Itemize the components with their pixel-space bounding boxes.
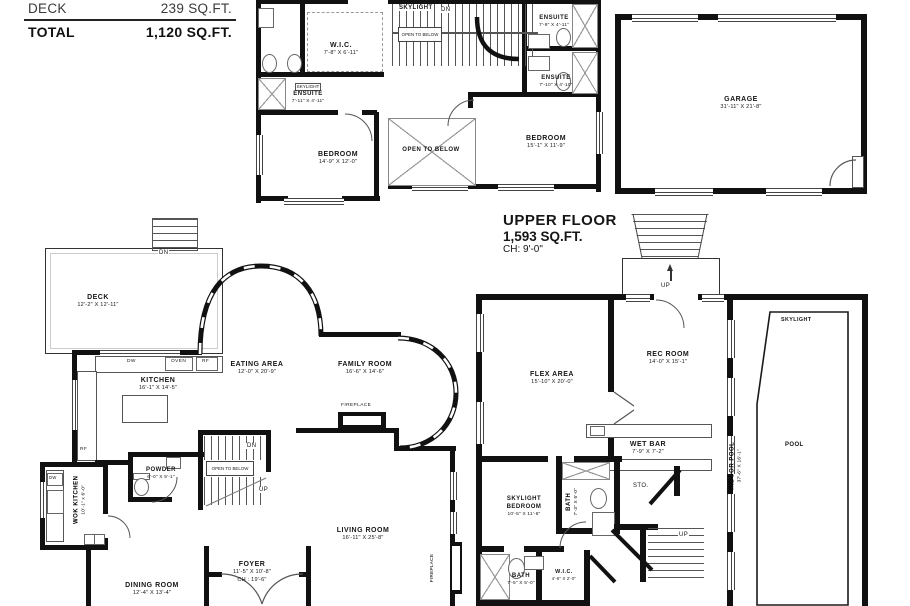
room-label-ensuite: ENSUITE 7'-10" X 4'-10": [523, 72, 589, 92]
room-label-dining-room: DINING ROOM 12'-4" X 13'-4": [106, 578, 198, 600]
rf-label: RF: [201, 359, 210, 364]
room-label-skylight-bedroom: SKYLIGHT BEDROOM 10'-5" X 11'-6": [482, 490, 566, 524]
eating-bay-wall: [200, 266, 321, 354]
room-label-bedroom: BEDROOM 14'-9" X 12'-0": [286, 146, 390, 170]
bedroom-door-arc: [448, 100, 474, 126]
double-door-lines: [614, 392, 634, 424]
summary-value: 1,120 SQ.FT.: [146, 24, 232, 40]
room-label-kitchen: KITCHEN 16'-1" X 14'-5": [118, 374, 198, 394]
dw-label: DW: [126, 359, 137, 364]
deck-dn-label: DN: [158, 250, 169, 256]
room-label-wok-kitchen: WOK KITCHEN 10'-1" x 6'-0": [52, 472, 108, 528]
curved-wall: [477, 17, 519, 59]
storage-label: STO.: [632, 483, 650, 489]
pool-skylight-label: SKYLIGHT: [780, 317, 812, 323]
family-bay-wall: [398, 338, 456, 448]
room-label-powder: POWDER 6'-0" X 5'-1": [132, 464, 190, 484]
room-label-indoor-pool: INDOOR POOL 37'-6" X 16'-1": [718, 424, 754, 508]
room-label-wet-bar: WET BAR 7'-9" X 7'-2": [606, 438, 690, 458]
bedroom-door-arc: [345, 114, 372, 141]
open-to-below-label: OPEN TO BELOW: [402, 138, 460, 164]
wok-door-arc: [108, 516, 130, 538]
room-label-wic: W.I.C. 4'-6" X 2'-0": [543, 566, 585, 584]
summary-row-total: TOTAL 1,120 SQ.FT.: [24, 23, 236, 41]
floor-title-name: UPPER FLOOR: [503, 212, 617, 229]
stair-up-label: UP: [678, 532, 689, 538]
fireplace-label: FIREPLACE: [340, 403, 372, 408]
angled-wall: [650, 470, 680, 504]
room-label-bath: BATH 7'-5" X 5'-0": [498, 570, 544, 590]
summary-row-deck: DECK 239 SQ.FT.: [24, 0, 236, 17]
entry-door-arc: [656, 300, 684, 328]
stair-dn-label: DN: [246, 443, 257, 449]
area-summary: DECK 239 SQ.FT. TOTAL 1,120 SQ.FT.: [24, 0, 236, 41]
room-label-deck: DECK 12'-2" X 12'-11": [52, 290, 144, 312]
room-label-rec-room: REC ROOM 14'-0" X 15'-1": [622, 346, 714, 370]
open-to-below-box: OPEN TO BELOW: [206, 461, 254, 476]
stair-up-label: UP: [258, 487, 269, 493]
oven-label: OVEN: [170, 359, 187, 364]
pool-outline: [757, 312, 848, 605]
garage-door-arc: [830, 160, 856, 186]
room-label-family-room: FAMILY ROOM 16'-6" X 14'-6": [322, 358, 408, 378]
stair-dn-label: DN: [440, 7, 451, 13]
room-label-garage: GARAGE 31'-11" X 21'-8": [691, 90, 791, 116]
entry-up-label: UP: [660, 283, 671, 289]
family-bay-windows: [398, 338, 456, 448]
summary-divider: [24, 19, 236, 21]
angled-wall: [590, 556, 615, 582]
room-label-wic: W.I.C. 7'-8" X 6'-11": [302, 38, 380, 60]
room-label-foyer: FOYER 11'-5" X 10'-8" CH : 19'-6": [212, 556, 292, 588]
floor-title-area: 1,593 SQ.FT.: [503, 229, 617, 244]
stair-break-line: [206, 478, 266, 506]
room-label-ensuite: ENSUITE 7'-9" X 4'-11": [521, 12, 587, 32]
floorplan-canvas: DECK 239 SQ.FT. TOTAL 1,120 SQ.FT.: [0, 0, 910, 606]
room-label-skylight-ensuite: SKYLIGHT ENSUITE 7'-11" X 4'-11": [282, 78, 334, 110]
skylight-label: SKYLIGHT: [398, 5, 434, 11]
angled-wall: [612, 530, 652, 570]
summary-label: DECK: [28, 1, 67, 16]
stair-side-lines: [633, 214, 707, 258]
room-label-bedroom: BEDROOM 15'-1" X 11'-9": [498, 130, 594, 154]
pool-label: POOL: [784, 442, 805, 448]
floor-title: UPPER FLOOR 1,593 SQ.FT. CH: 9'-0": [503, 212, 617, 255]
rf-label: RF: [79, 447, 88, 452]
room-label-flex-area: FLEX AREA 15'-10" X 20'-0": [506, 366, 598, 390]
up-arrow-icon: [667, 264, 673, 271]
fireplace-label-vertical: FIREPLACE: [418, 542, 448, 594]
summary-label: TOTAL: [28, 24, 75, 40]
room-label-living-room: LIVING ROOM 16'-11" X 25'-8": [320, 524, 406, 544]
summary-value: 239 SQ.FT.: [161, 1, 232, 16]
open-to-below-box: OPEN TO BELOW: [398, 27, 442, 42]
floor-title-ch: CH: 9'-0": [503, 244, 617, 255]
room-label-eating-area: EATING AREA 12'-0" X 20'-9": [212, 358, 302, 378]
